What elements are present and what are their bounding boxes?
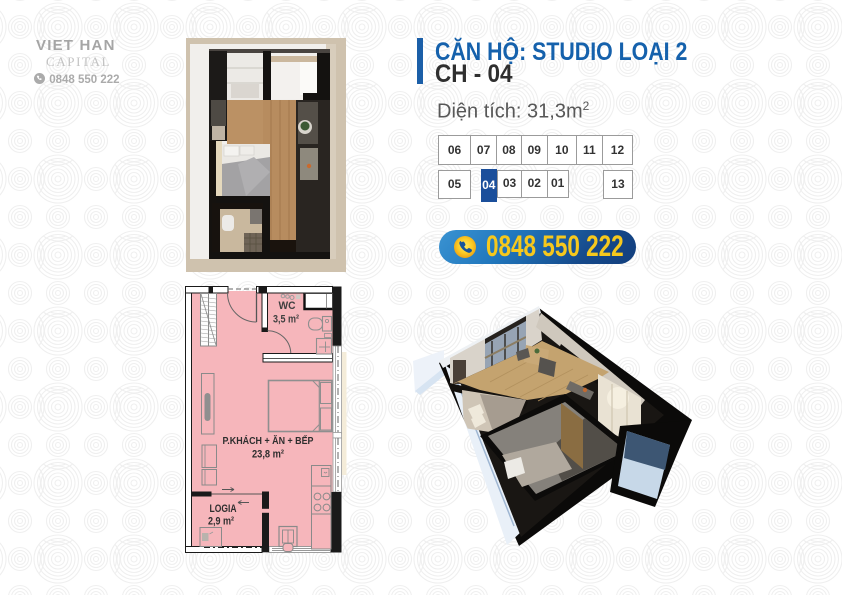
svg-text:2,9 m²: 2,9 m² <box>208 516 234 528</box>
svg-text:WC: WC <box>279 300 296 312</box>
svg-text:23,8 m²: 23,8 m² <box>252 449 284 461</box>
svg-text:P.KHÁCH + ĂN + BẾP: P.KHÁCH + ĂN + BẾP <box>223 434 314 447</box>
svg-text:LOGIA: LOGIA <box>210 503 237 515</box>
svg-text:3,5 m²: 3,5 m² <box>273 314 299 326</box>
